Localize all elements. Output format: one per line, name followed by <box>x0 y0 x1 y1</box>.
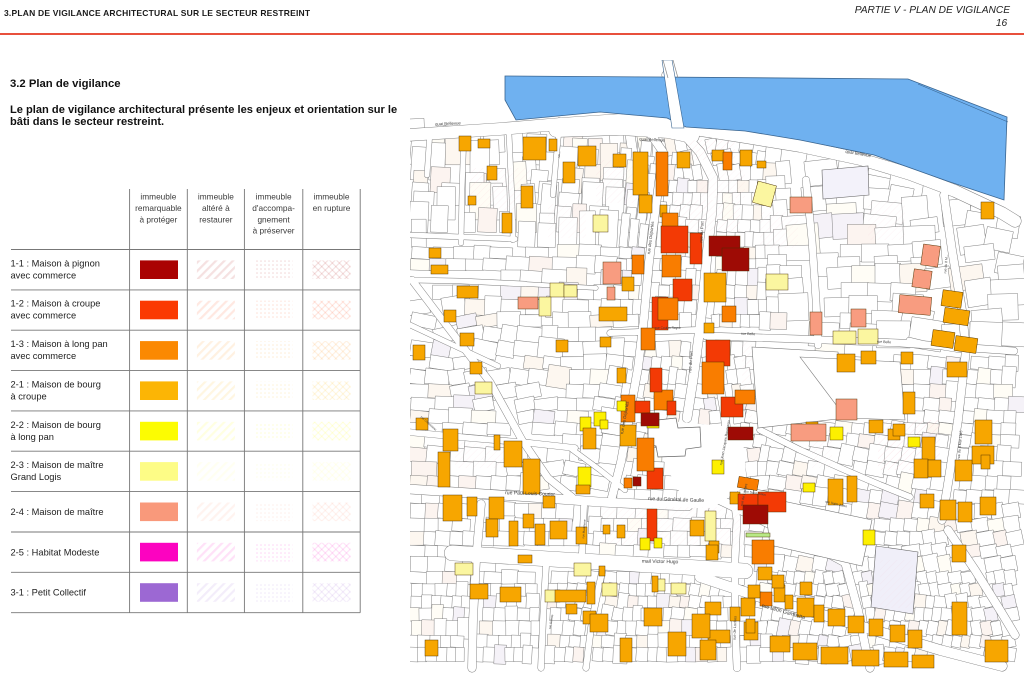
svg-text:1-3 : Maison à long pan: 1-3 : Maison à long pan <box>11 339 108 349</box>
svg-text:avec commerce: avec commerce <box>11 311 77 321</box>
svg-text:Grand Logis: Grand Logis <box>11 472 62 482</box>
svg-text:avec commerce: avec commerce <box>11 351 77 361</box>
svg-text:3-1 : Petit Collectif: 3-1 : Petit Collectif <box>11 588 87 598</box>
svg-text:rue...: rue... <box>557 151 562 158</box>
svg-text:à croupe: à croupe <box>11 391 47 401</box>
svg-text:remarquable: remarquable <box>135 203 182 213</box>
svg-text:à préserver: à préserver <box>253 226 295 236</box>
svg-text:2-1 : Maison de bourg: 2-1 : Maison de bourg <box>11 379 101 389</box>
svg-text:2-5 : Habitat Modeste: 2-5 : Habitat Modeste <box>11 547 100 557</box>
svg-text:2-2 : Maison de bourg: 2-2 : Maison de bourg <box>11 420 101 430</box>
svg-text:immeuble: immeuble <box>256 192 292 202</box>
svg-text:gnement: gnement <box>257 214 290 224</box>
svg-text:1-2 : Maison à croupe: 1-2 : Maison à croupe <box>11 299 101 309</box>
svg-text:rue Belle: rue Belle <box>741 332 755 336</box>
svg-text:altéré à: altéré à <box>202 203 230 213</box>
svg-text:à long pan: à long pan <box>11 432 54 442</box>
svg-text:d'accompa-: d'accompa- <box>252 203 295 213</box>
svg-text:2-4 : Maison de maître: 2-4 : Maison de maître <box>11 507 104 517</box>
svg-text:restaurer: restaurer <box>199 214 232 224</box>
svg-text:1-1 : Maison à pignon: 1-1 : Maison à pignon <box>11 258 100 268</box>
svg-text:en rupture: en rupture <box>313 203 351 213</box>
svg-text:immeuble: immeuble <box>140 192 176 202</box>
svg-text:avec commerce: avec commerce <box>11 270 77 280</box>
svg-text:rue Belle: rue Belle <box>877 340 891 345</box>
svg-text:rue de Loches: rue de Loches <box>733 616 738 640</box>
svg-text:à protéger: à protéger <box>139 214 177 224</box>
svg-text:2-3 : Maison de maître: 2-3 : Maison de maître <box>11 460 104 470</box>
svg-text:mail Victor Hugo: mail Victor Hugo <box>642 559 679 566</box>
svg-text:immeuble: immeuble <box>198 192 234 202</box>
svg-text:rue Coulon Rayne: rue Coulon Rayne <box>655 326 681 330</box>
svg-text:immeuble: immeuble <box>314 192 350 202</box>
